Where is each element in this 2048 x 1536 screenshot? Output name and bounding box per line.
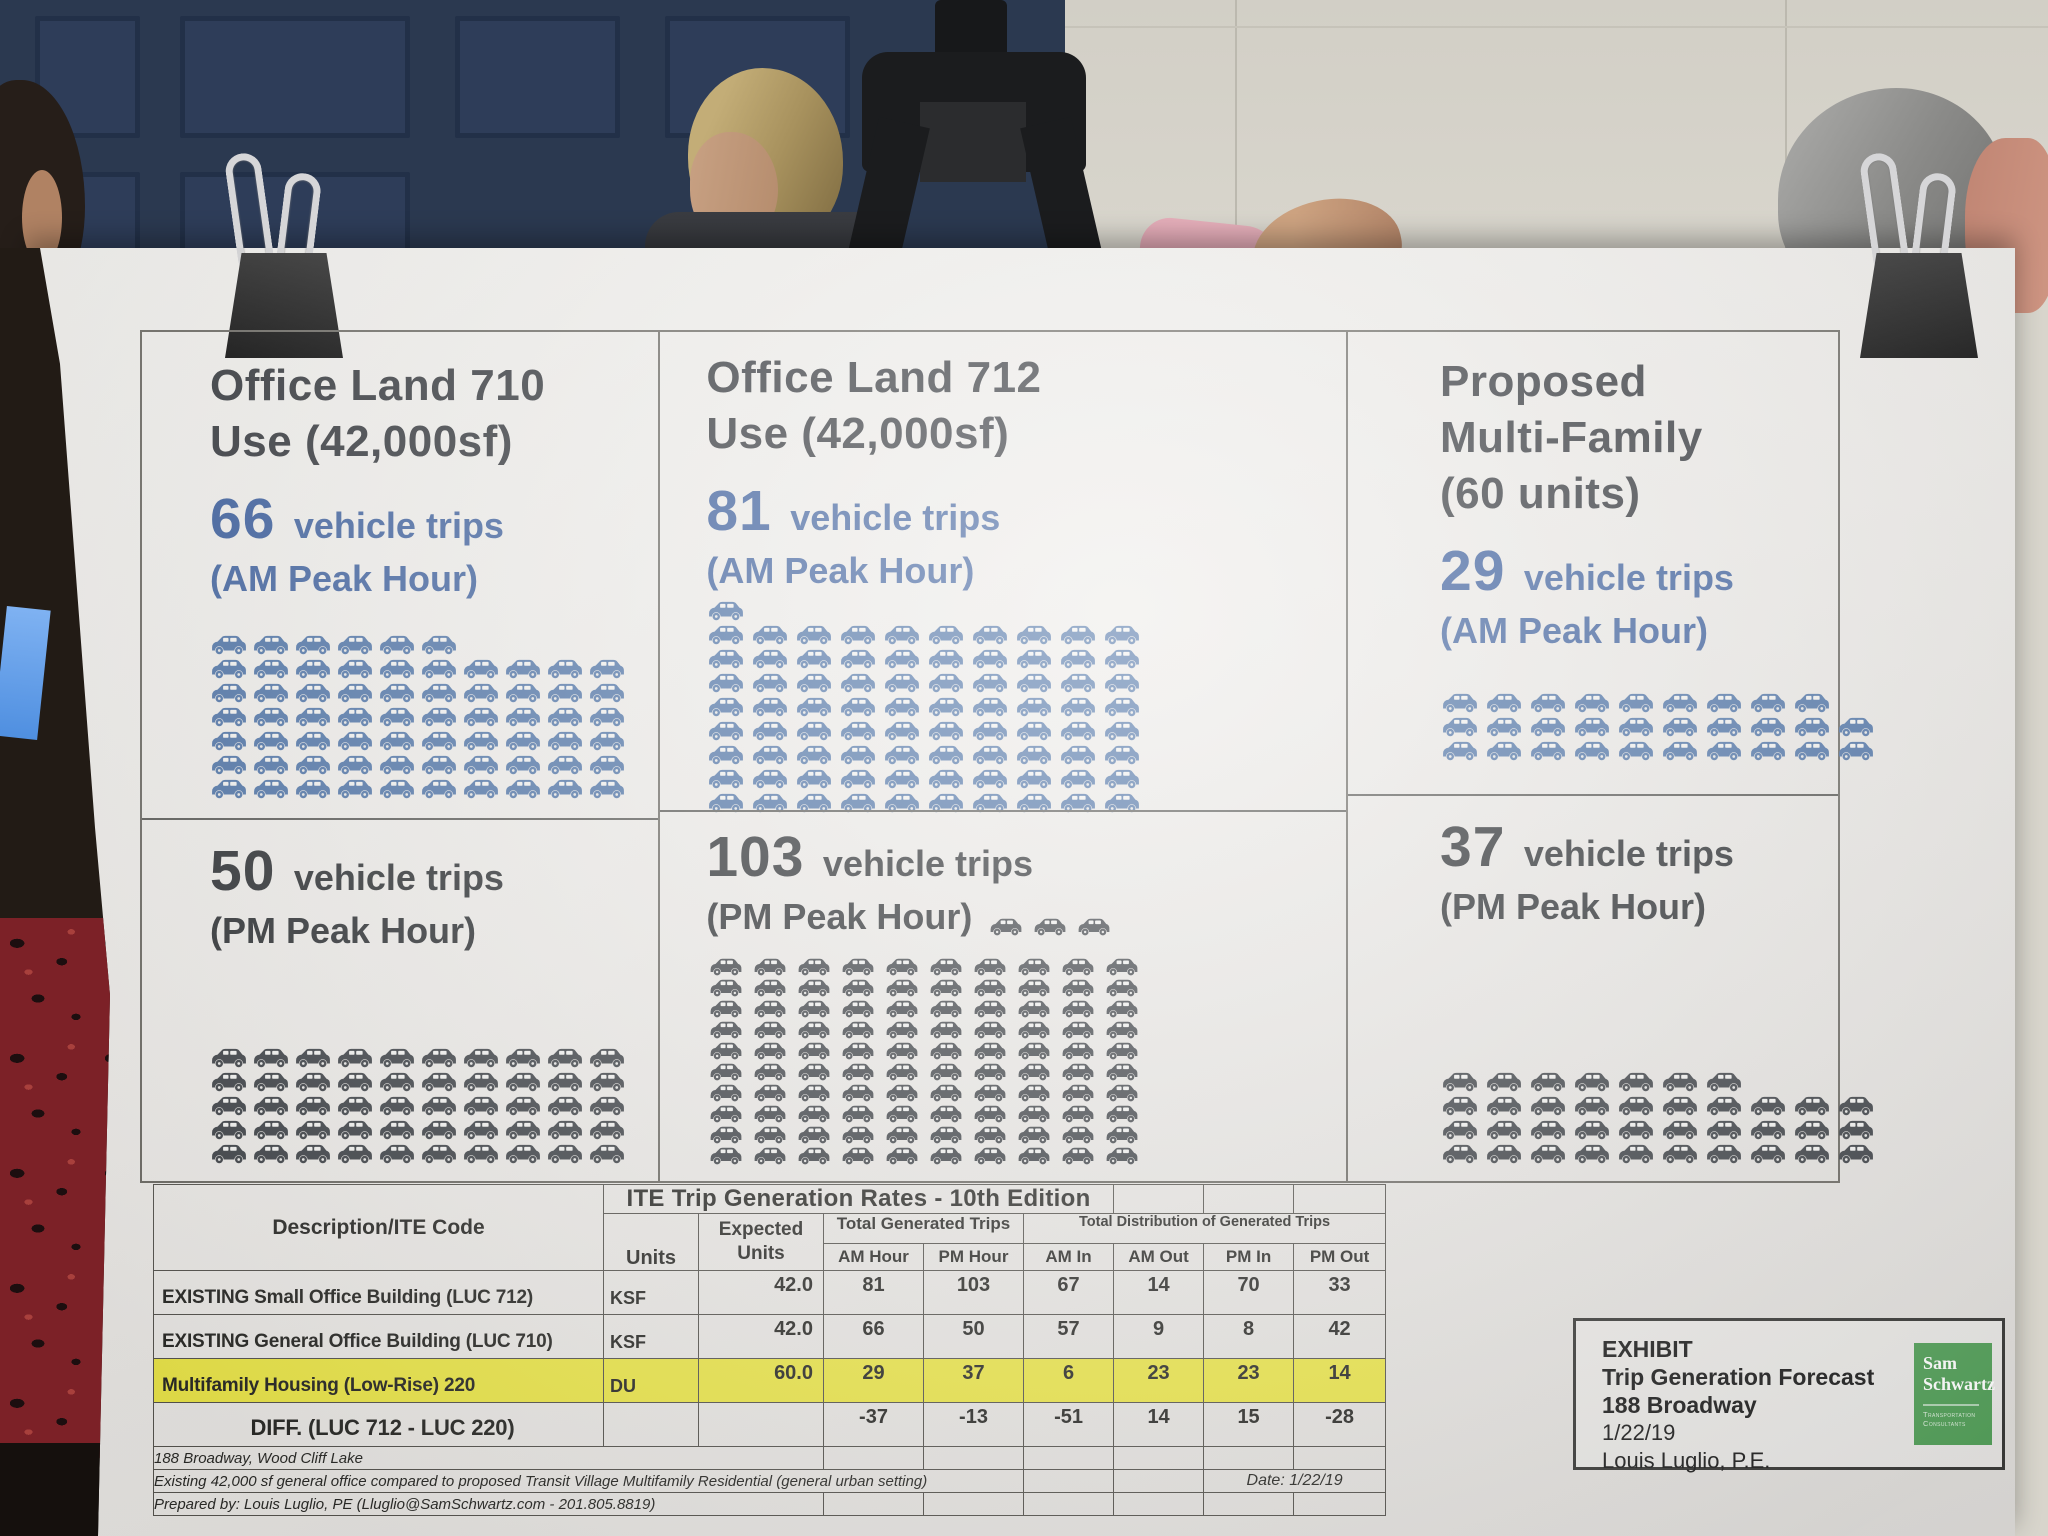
car-row: [706, 1041, 1346, 1062]
car-icon: [294, 658, 332, 680]
car-icon: [1616, 1119, 1656, 1141]
car-icon: [504, 730, 542, 752]
car-icon: [588, 730, 626, 752]
subheader-am-out: AM Out: [1114, 1244, 1204, 1271]
empty-cell: [1114, 1447, 1204, 1470]
am-trip-stat: 66 vehicle trips: [210, 486, 658, 552]
car-icon: [1014, 1146, 1054, 1166]
car-icon: [1572, 716, 1612, 738]
am-trip-label: vehicle trips: [294, 505, 504, 546]
car-icon: [1572, 1095, 1612, 1117]
car-icon: [750, 1062, 790, 1082]
car-icon: [1572, 740, 1612, 762]
subheader-pm-out: PM Out: [1294, 1244, 1386, 1271]
car-icon: [378, 1119, 416, 1141]
pm-trip-count: 103: [706, 825, 804, 889]
pm-trip-label: vehicle trips: [294, 857, 504, 898]
car-icon: [882, 648, 922, 670]
car-icon: [1440, 1143, 1480, 1165]
am-trip-stat: 81 vehicle trips: [706, 478, 1346, 544]
panel-title: Office Land 712Use (42,000sf): [706, 350, 1346, 462]
car-icon: [420, 730, 458, 752]
car-icon: [750, 1041, 790, 1061]
car-icon: [882, 978, 922, 998]
car-icon: [462, 1047, 500, 1069]
car-icon: [588, 1119, 626, 1141]
car-icon: [1014, 1125, 1054, 1145]
footnote-date: Date: 1/22/19: [1204, 1470, 1386, 1493]
car-icon: [420, 1071, 458, 1093]
car-icon: [1058, 999, 1098, 1019]
footnote-prepared-by: Prepared by: Louis Luglio, PE (Lluglio@S…: [154, 1493, 824, 1516]
cell-value: 14: [1114, 1403, 1204, 1447]
pm-trip-stat: 103 vehicle trips: [706, 824, 1346, 890]
empty-cell: [1024, 1493, 1114, 1516]
car-icon: [838, 744, 878, 766]
car-row: [210, 730, 658, 754]
car-icon: [706, 600, 746, 622]
cell-units: KSF: [604, 1271, 699, 1315]
am-trip-count: 66: [210, 487, 275, 551]
car-icon: [926, 1104, 966, 1124]
car-row: [706, 672, 1346, 696]
car-icon: [926, 957, 966, 977]
car-icon: [1014, 978, 1054, 998]
binder-clip-body: [1860, 253, 1978, 358]
exhibit-author: Louis Luglio, P.E.: [1602, 1447, 2002, 1475]
cell-units: KSF: [604, 1315, 699, 1359]
car-icon: [750, 999, 790, 1019]
pm-car-grid: [1440, 1071, 1838, 1167]
car-icon: [252, 1143, 290, 1165]
car-icon: [336, 778, 374, 800]
car-icon: [462, 682, 500, 704]
car-icon: [378, 730, 416, 752]
car-icon: [1058, 1146, 1098, 1166]
car-icon: [462, 754, 500, 776]
car-icon: [1102, 720, 1142, 742]
car-icon: [838, 1083, 878, 1103]
car-icon: [794, 672, 834, 694]
empty-cell: [1204, 1185, 1294, 1214]
car-icon: [706, 648, 746, 670]
car-icon: [1748, 692, 1788, 714]
car-icon: [838, 1104, 878, 1124]
car-icon: [420, 706, 458, 728]
car-icon: [1704, 692, 1744, 714]
car-icon: [1792, 1095, 1832, 1117]
cell-value: 9: [1114, 1315, 1204, 1359]
car-icon: [882, 696, 922, 718]
car-icon: [252, 730, 290, 752]
car-icon: [706, 1083, 746, 1103]
car-row: [986, 917, 1118, 938]
car-icon: [462, 1119, 500, 1141]
car-icon: [378, 1071, 416, 1093]
car-icon: [336, 754, 374, 776]
car-icon: [1014, 1020, 1054, 1040]
cell-description: DIFF. (LUC 712 - LUC 220): [154, 1403, 604, 1447]
col-header-expected: ExpectedUnits: [699, 1214, 824, 1271]
pm-section: 37 vehicle trips (PM Peak Hour): [1348, 794, 1838, 1181]
car-icon: [970, 648, 1010, 670]
subheader-am-hour: AM Hour: [824, 1244, 924, 1271]
car-icon: [794, 978, 834, 998]
car-icon: [882, 1062, 922, 1082]
empty-cell: [1114, 1493, 1204, 1516]
car-icon: [750, 768, 790, 790]
table-row: Multifamily Housing (Low-Rise) 220DU60.0…: [154, 1359, 1386, 1403]
car-icon: [706, 1104, 746, 1124]
car-icon: [838, 1020, 878, 1040]
car-icon: [1660, 1071, 1700, 1093]
car-icon: [926, 672, 966, 694]
car-icon: [252, 634, 290, 656]
footnote-comparison: Existing 42,000 sf general office compar…: [154, 1470, 1024, 1493]
car-icon: [294, 1095, 332, 1117]
car-icon: [794, 1104, 834, 1124]
exhibit-stamp-box: EXHIBIT Trip Generation Forecast 188 Bro…: [1573, 1318, 2005, 1470]
car-icon: [1014, 957, 1054, 977]
car-icon: [420, 1119, 458, 1141]
am-car-grid: [1440, 692, 1838, 764]
car-icon: [750, 1020, 790, 1040]
pm-section: 103 vehicle trips (PM Peak Hour): [660, 810, 1346, 1181]
car-icon: [588, 682, 626, 704]
car-icon: [1484, 1071, 1524, 1093]
car-icon: [1528, 716, 1568, 738]
car-icon: [1102, 1062, 1142, 1082]
am-car-grid: [210, 634, 658, 802]
car-icon: [210, 1047, 248, 1069]
car-row: [1440, 716, 1838, 740]
car-icon: [1102, 1041, 1142, 1061]
car-icon: [970, 624, 1010, 646]
car-icon: [882, 1041, 922, 1061]
car-icon: [1058, 744, 1098, 766]
car-icon: [882, 999, 922, 1019]
car-row: [706, 624, 1346, 648]
table-title: ITE Trip Generation Rates - 10th Edition: [604, 1185, 1114, 1214]
car-icon: [1014, 1062, 1054, 1082]
logo-word-schwartz: Schwartz: [1923, 1374, 1992, 1395]
pm-trip-count: 50: [210, 839, 275, 903]
car-icon: [378, 1095, 416, 1117]
car-icon: [750, 978, 790, 998]
car-icon: [462, 1095, 500, 1117]
car-icon: [882, 1125, 922, 1145]
empty-cell: [1294, 1447, 1386, 1470]
car-icon: [1836, 1119, 1876, 1141]
car-icon: [252, 682, 290, 704]
car-icon: [838, 1062, 878, 1082]
car-icon: [794, 957, 834, 977]
car-icon: [706, 978, 746, 998]
car-icon: [1440, 1071, 1480, 1093]
car-icon: [926, 648, 966, 670]
car-icon: [882, 1146, 922, 1166]
car-icon: [706, 1125, 746, 1145]
cell-value: 50: [924, 1315, 1024, 1359]
car-icon: [1102, 696, 1142, 718]
car-icon: [970, 1020, 1010, 1040]
car-row: [706, 978, 1346, 999]
cell-value: 70: [1204, 1271, 1294, 1315]
cell-value: -51: [1024, 1403, 1114, 1447]
car-icon: [294, 1047, 332, 1069]
car-icon: [1528, 1095, 1568, 1117]
car-icon: [1748, 740, 1788, 762]
car-row: [706, 1125, 1346, 1146]
cell-value: 15: [1204, 1403, 1294, 1447]
car-icon: [1058, 978, 1098, 998]
pm-peak-label: (PM Peak Hour): [210, 910, 658, 952]
car-icon: [794, 1020, 834, 1040]
car-icon: [504, 1071, 542, 1093]
car-row: [1440, 1119, 1838, 1143]
car-icon: [926, 768, 966, 790]
car-icon: [1528, 1071, 1568, 1093]
car-icon: [210, 730, 248, 752]
car-icon: [1102, 1125, 1142, 1145]
car-icon: [1792, 740, 1832, 762]
car-icon: [336, 730, 374, 752]
pm-car-grid: [706, 957, 1346, 1167]
car-icon: [420, 634, 458, 656]
car-icon: [1058, 648, 1098, 670]
car-icon: [1572, 1071, 1612, 1093]
car-icon: [588, 778, 626, 800]
table-body: EXISTING Small Office Building (LUC 712)…: [154, 1271, 1386, 1447]
car-icon: [462, 778, 500, 800]
cell-expected: 42.0: [699, 1315, 824, 1359]
car-icon: [750, 696, 790, 718]
car-icon: [926, 999, 966, 1019]
car-icon: [336, 1095, 374, 1117]
car-icon: [882, 768, 922, 790]
car-icon: [926, 624, 966, 646]
presentation-poster: Office Land 710Use (42,000sf) 66 vehicle…: [25, 248, 2015, 1536]
car-icon: [1572, 1143, 1612, 1165]
cell-units: [604, 1403, 699, 1447]
car-icon: [378, 778, 416, 800]
cell-expected: 42.0: [699, 1271, 824, 1315]
car-icon: [1014, 624, 1054, 646]
panel-office-luc712: Office Land 712Use (42,000sf) 81 vehicle…: [660, 332, 1348, 1181]
car-icon: [970, 672, 1010, 694]
car-icon: [926, 1041, 966, 1061]
car-icon: [1014, 696, 1054, 718]
trip-pictograph-panel: Office Land 710Use (42,000sf) 66 vehicle…: [140, 330, 1840, 1183]
car-icon: [294, 778, 332, 800]
binder-clip-wire: [1858, 151, 1909, 267]
car-icon: [588, 706, 626, 728]
car-icon: [1058, 957, 1098, 977]
car-row: [706, 1062, 1346, 1083]
cell-units: DU: [604, 1359, 699, 1403]
car-icon: [1792, 1119, 1832, 1141]
car-icon: [1014, 720, 1054, 742]
car-row: [706, 999, 1346, 1020]
car-icon: [1836, 1095, 1876, 1117]
pm-section: 50 vehicle trips (PM Peak Hour): [142, 818, 658, 1181]
car-icon: [882, 720, 922, 742]
car-row: [1440, 740, 1838, 764]
pm-trip-stat: 37 vehicle trips: [1440, 814, 1838, 880]
am-trip-label: vehicle trips: [790, 497, 1000, 538]
car-icon: [1440, 716, 1480, 738]
car-icon: [1058, 768, 1098, 790]
car-row: [706, 1020, 1346, 1041]
am-peak-label: (AM Peak Hour): [210, 558, 658, 600]
car-icon: [1484, 1095, 1524, 1117]
empty-cell: [1294, 1493, 1386, 1516]
car-icon: [378, 1047, 416, 1069]
car-icon: [1102, 1020, 1142, 1040]
car-icon: [1058, 1104, 1098, 1124]
subheader-pm-hour: PM Hour: [924, 1244, 1024, 1271]
car-icon: [378, 1143, 416, 1165]
car-icon: [1440, 740, 1480, 762]
car-icon: [882, 957, 922, 977]
car-icon: [210, 634, 248, 656]
car-icon: [336, 1047, 374, 1069]
car-icon: [1748, 1095, 1788, 1117]
car-icon: [462, 730, 500, 752]
cell-expected: 60.0: [699, 1359, 824, 1403]
car-icon: [706, 624, 746, 646]
door-panel: [180, 16, 410, 138]
car-row: [706, 600, 1346, 624]
car-icon: [926, 1062, 966, 1082]
car-icon: [588, 1095, 626, 1117]
logo-word-sam: Sam: [1923, 1353, 1992, 1374]
car-icon: [838, 696, 878, 718]
car-row: [210, 1071, 658, 1095]
car-icon: [378, 706, 416, 728]
car-icon: [970, 1125, 1010, 1145]
cell-value: 57: [1024, 1315, 1114, 1359]
car-icon: [1058, 624, 1098, 646]
car-icon: [588, 1071, 626, 1093]
car-icon: [706, 1062, 746, 1082]
car-icon: [1102, 624, 1142, 646]
car-icon: [210, 706, 248, 728]
empty-cell: [824, 1447, 924, 1470]
car-icon: [336, 706, 374, 728]
car-icon: [252, 1071, 290, 1093]
car-icon: [882, 1104, 922, 1124]
car-icon: [794, 1083, 834, 1103]
car-row: [210, 1143, 658, 1167]
car-row: [210, 634, 658, 658]
car-icon: [1616, 1143, 1656, 1165]
car-icon: [1058, 1020, 1098, 1040]
cell-description: EXISTING Small Office Building (LUC 712): [154, 1271, 604, 1315]
cell-description: EXISTING General Office Building (LUC 71…: [154, 1315, 604, 1359]
car-icon: [750, 1083, 790, 1103]
car-icon: [926, 1125, 966, 1145]
car-icon: [882, 1083, 922, 1103]
car-icon: [794, 624, 834, 646]
car-icon: [926, 744, 966, 766]
footnote-address: 188 Broadway, Wood Cliff Lake: [154, 1447, 824, 1470]
car-icon: [588, 658, 626, 680]
car-icon: [1058, 1062, 1098, 1082]
table-row: EXISTING Small Office Building (LUC 712)…: [154, 1271, 1386, 1315]
car-icon: [336, 1119, 374, 1141]
car-icon: [794, 744, 834, 766]
car-icon: [504, 1095, 542, 1117]
car-row: [1440, 1071, 1838, 1095]
car-icon: [504, 682, 542, 704]
car-row: [210, 658, 658, 682]
car-icon: [1528, 692, 1568, 714]
car-icon: [252, 1047, 290, 1069]
car-icon: [504, 778, 542, 800]
car-icon: [504, 658, 542, 680]
car-icon: [1836, 740, 1876, 762]
car-icon: [1836, 1143, 1876, 1165]
car-icon: [336, 682, 374, 704]
empty-cell: [1024, 1447, 1114, 1470]
car-icon: [926, 696, 966, 718]
car-icon: [1058, 1125, 1098, 1145]
cell-value: -13: [924, 1403, 1024, 1447]
car-icon: [294, 682, 332, 704]
car-icon: [794, 1125, 834, 1145]
car-icon: [546, 730, 584, 752]
car-row: [706, 1104, 1346, 1125]
empty-cell: [924, 1493, 1024, 1516]
am-trip-label: vehicle trips: [1524, 557, 1734, 598]
car-icon: [794, 1041, 834, 1061]
binder-clip-right: [1860, 153, 1980, 358]
car-icon: [336, 658, 374, 680]
car-icon: [294, 1119, 332, 1141]
car-row: [706, 648, 1346, 672]
car-icon: [750, 624, 790, 646]
car-icon: [420, 682, 458, 704]
cell-value: 81: [824, 1271, 924, 1315]
subheader-am-in: AM In: [1024, 1244, 1114, 1271]
col-header-description: Description/ITE Code: [154, 1185, 604, 1271]
car-icon: [1102, 999, 1142, 1019]
car-icon: [706, 768, 746, 790]
cell-value: 29: [824, 1359, 924, 1403]
car-icon: [882, 672, 922, 694]
car-icon: [750, 1125, 790, 1145]
car-icon: [546, 1047, 584, 1069]
car-icon: [1528, 1143, 1568, 1165]
car-icon: [210, 1071, 248, 1093]
car-row: [1440, 1143, 1838, 1167]
car-icon: [794, 1062, 834, 1082]
pm-trip-stat: 50 vehicle trips: [210, 838, 658, 904]
car-icon: [294, 730, 332, 752]
car-icon: [588, 754, 626, 776]
car-icon: [420, 778, 458, 800]
car-icon: [1440, 1119, 1480, 1141]
car-row: [1440, 1095, 1838, 1119]
car-icon: [750, 1146, 790, 1166]
car-icon: [1792, 1143, 1832, 1165]
car-icon: [1014, 999, 1054, 1019]
car-icon: [882, 1020, 922, 1040]
car-icon: [706, 672, 746, 694]
cell-value: 66: [824, 1315, 924, 1359]
empty-cell: [1204, 1447, 1294, 1470]
